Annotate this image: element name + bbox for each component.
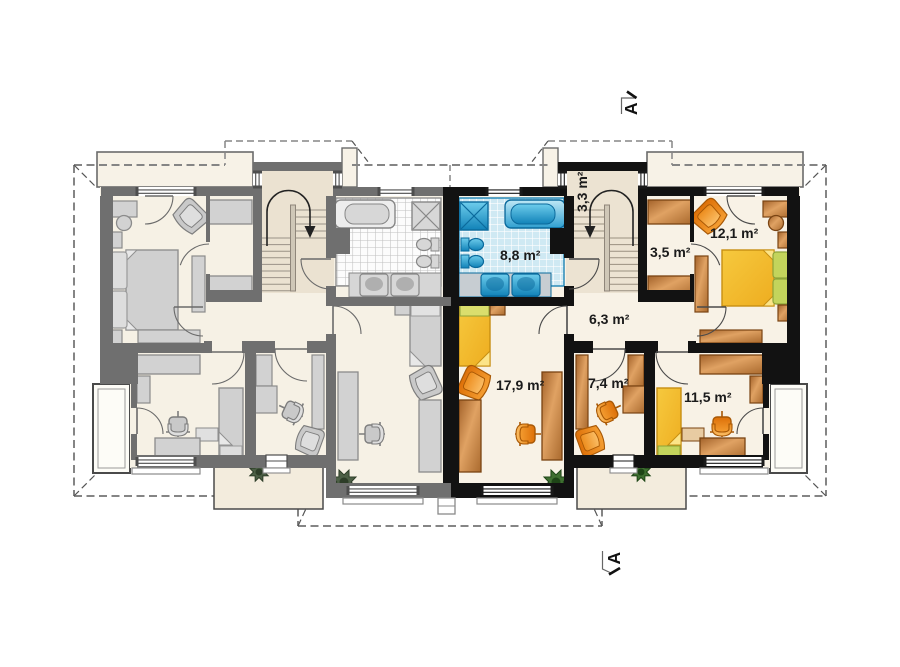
svg-text:7,4 m²: 7,4 m² [588, 375, 629, 391]
svg-text:17,9 m²: 17,9 m² [496, 377, 545, 393]
svg-text:8,8 m²: 8,8 m² [500, 247, 541, 263]
svg-text:3,5 m²: 3,5 m² [650, 244, 691, 260]
svg-text:3,3 m²: 3,3 m² [574, 171, 590, 212]
svg-text:A: A [604, 552, 624, 565]
svg-text:A: A [621, 102, 641, 115]
svg-text:11,5 m²: 11,5 m² [684, 389, 732, 405]
svg-text:6,3 m²: 6,3 m² [589, 311, 630, 327]
svg-text:12,1 m²: 12,1 m² [710, 225, 759, 241]
